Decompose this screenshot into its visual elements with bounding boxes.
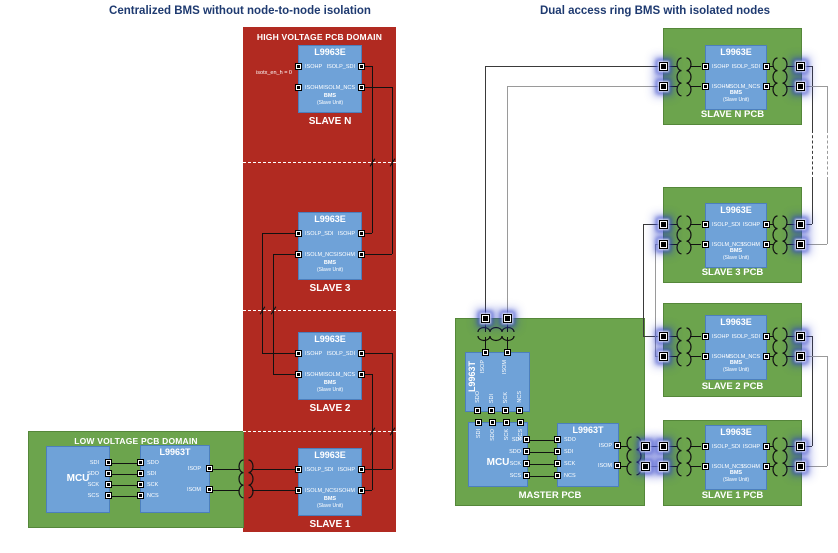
pin-pad <box>137 459 144 466</box>
bms-sublabel: BMS <box>299 93 361 99</box>
wire <box>362 87 392 88</box>
pin-pad <box>517 419 524 426</box>
pin-pad <box>554 436 561 443</box>
pin-pad <box>554 460 561 467</box>
wire <box>392 353 393 469</box>
pin-label: ISOLM_NCS <box>323 372 355 378</box>
wire <box>210 490 239 491</box>
pin-label: SDO <box>147 460 159 466</box>
pin-label: ISOLP_SDI <box>712 222 740 228</box>
pin-pad <box>358 487 365 494</box>
wire <box>210 469 239 470</box>
pin-pad <box>702 463 709 470</box>
wire <box>643 224 644 336</box>
bms-sublabel: BMS <box>706 360 766 366</box>
wire <box>392 87 393 254</box>
wire <box>827 86 828 130</box>
left-diagram-title: Centralized BMS without node-to-node iso… <box>40 5 440 17</box>
pin-label: SDO <box>509 449 521 455</box>
pin-pad <box>763 83 770 90</box>
pin-pad <box>489 419 496 426</box>
wire <box>262 233 298 234</box>
wire <box>372 66 373 233</box>
slave-name: SLAVE 2 <box>278 403 382 414</box>
chip-l9963e-slave-n-pcb: L9963E ISOHP ISOHM ISOLP_SDI ISOLM_NCS B… <box>705 45 767 110</box>
wire <box>650 446 659 447</box>
pin-pad <box>763 443 770 450</box>
wire <box>827 356 828 466</box>
wire-dotted-continuation <box>812 130 813 180</box>
pin-label: ISOP <box>188 466 201 472</box>
pin-pad <box>763 353 770 360</box>
pin-pad <box>523 460 530 467</box>
chip-l9963e-slave-3-pcb: L9963E ISOLP_SDI ISOLM_NCS ISOHP ISOHM B… <box>705 203 767 268</box>
bms-sublabel: (Slave Unit) <box>706 97 766 103</box>
pin-pad <box>614 442 621 449</box>
wire <box>805 446 812 447</box>
pin-label: ISOHM <box>337 252 355 258</box>
pin-pad <box>295 63 302 70</box>
slave-name: SLAVE N <box>278 116 382 127</box>
isolated-connector <box>796 220 805 229</box>
chip-l9963e-slave-1-pcb: L9963E ISOLP_SDI ISOLM_NCS ISOHP ISOHM B… <box>705 425 767 490</box>
transformer-icon <box>676 213 692 257</box>
wire <box>262 233 263 353</box>
pin-label: SDI <box>512 437 521 443</box>
chip-l9963e-slave-n: L9963E ISOHP ISOHM ISOLP_SDI ISOLM_NCS B… <box>298 45 362 113</box>
isolated-connector <box>796 332 805 341</box>
isolated-connector <box>659 62 668 71</box>
bms-architecture-diagram: Centralized BMS without node-to-node iso… <box>0 0 838 553</box>
pin-label: ISOLP_SDI <box>732 64 760 70</box>
pin-pad <box>523 472 530 479</box>
wire <box>362 353 392 354</box>
lv-domain-label: LOW VOLTAGE PCB DOMAIN <box>28 436 244 446</box>
pin-pad <box>702 333 709 340</box>
pin-label: SCK <box>504 429 510 440</box>
chip-label: L9963E <box>706 317 766 327</box>
pin-label: SCS <box>510 473 521 479</box>
pin-pad <box>137 481 144 488</box>
master-pcb-label: MASTER PCB <box>456 490 644 501</box>
wire <box>485 66 486 314</box>
wire <box>827 180 828 244</box>
pin-pad <box>502 407 509 414</box>
isolated-connector <box>796 442 805 451</box>
pin-pad <box>105 492 112 499</box>
pin-pad <box>702 241 709 248</box>
pin-label: ISOLP_SDI <box>732 334 760 340</box>
pin-label: SDO <box>87 471 99 477</box>
pin-label: ISOHP <box>338 231 355 237</box>
pin-label: ISOM <box>502 360 508 374</box>
pin-label: ISOHM <box>305 372 323 378</box>
slave-name: SLAVE 1 <box>278 519 382 530</box>
pin-pad <box>614 462 621 469</box>
pin-pad <box>295 230 302 237</box>
pin-label: ISOHM <box>305 85 323 91</box>
bms-sublabel: BMS <box>299 496 361 502</box>
pin-pad <box>358 230 365 237</box>
wire <box>655 244 656 356</box>
pin-pad <box>474 407 481 414</box>
pin-pad <box>137 470 144 477</box>
wire <box>805 336 812 337</box>
pin-pad <box>295 350 302 357</box>
wire <box>805 244 827 245</box>
chip-label: L9963E <box>299 450 361 460</box>
wire <box>273 254 274 374</box>
pin-pad <box>358 84 365 91</box>
pin-label: ISOHP <box>743 444 760 450</box>
bms-sublabel: (Slave Unit) <box>706 477 766 483</box>
pin-pad <box>763 63 770 70</box>
bms-sublabel: (Slave Unit) <box>299 100 361 106</box>
pin-pad <box>702 353 709 360</box>
isolated-connector <box>659 442 668 451</box>
pin-pad <box>488 407 495 414</box>
pin-pad <box>475 419 482 426</box>
pin-pad <box>358 371 365 378</box>
transformer-icon <box>772 55 788 99</box>
wire <box>805 224 812 225</box>
pin-pad <box>702 221 709 228</box>
isolated-connector <box>659 352 668 361</box>
pin-pad <box>206 486 213 493</box>
slave-pcb-label: SLAVE 3 PCB <box>664 267 801 278</box>
pin-pad <box>295 251 302 258</box>
pin-label: SCK <box>147 482 158 488</box>
chip-l9963t-left: L9963T SDO SDI SCK NCS ISOP ISOM <box>140 445 210 513</box>
bms-sublabel: (Slave Unit) <box>299 387 361 393</box>
isolated-connector <box>659 82 668 91</box>
wire <box>528 476 557 477</box>
pin-pad <box>295 466 302 473</box>
pin-label: ISOHP <box>305 351 322 357</box>
chip-label: L9963E <box>299 214 361 224</box>
bms-sublabel: (Slave Unit) <box>706 367 766 373</box>
chip-mcu-master: SDI SDO SCK SCS MCU SDI SDO SCK SCS <box>468 422 528 487</box>
wire <box>643 224 659 225</box>
wire <box>805 66 812 67</box>
chip-l9963e-slave-1: L9963E ISOLP_SDI ISOLM_NCS ISOHP ISOHM B… <box>298 448 362 516</box>
pin-label: SCK <box>564 461 575 467</box>
pin-label: ISOLM_NCS <box>305 488 337 494</box>
pin-label: ISOHM <box>337 488 355 494</box>
pin-label: ISOHP <box>305 64 322 70</box>
pin-pad <box>295 84 302 91</box>
chip-label: L9963E <box>706 205 766 215</box>
pin-label: NCS <box>147 493 159 499</box>
slave-name: SLAVE 3 <box>278 283 382 294</box>
isolated-connector <box>659 240 668 249</box>
pin-pad <box>523 436 530 443</box>
wire <box>252 469 298 470</box>
pin-pad <box>504 349 511 356</box>
chip-l9963e-slave-2-pcb: L9963E ISOHP ISOHM ISOLP_SDI ISOLM_NCS B… <box>705 315 767 380</box>
bms-sublabel: (Slave Unit) <box>299 503 361 509</box>
pin-pad <box>763 463 770 470</box>
chip-mcu-left: MCU SDI SDO SCK SCS <box>46 446 110 513</box>
pin-label: ISOLP_SDI <box>305 467 333 473</box>
isolated-connector <box>659 220 668 229</box>
pin-pad <box>763 333 770 340</box>
pin-label: NCS <box>517 391 523 403</box>
pin-label: ISOLP_SDI <box>327 351 355 357</box>
pin-pad <box>763 241 770 248</box>
isolated-connector <box>641 442 650 451</box>
pin-label: SDI <box>90 460 99 466</box>
wire <box>362 254 392 255</box>
pin-label: SCK <box>88 482 99 488</box>
pin-label: ISOHP <box>712 64 729 70</box>
wire <box>507 86 659 87</box>
wire <box>650 466 659 467</box>
pin-pad <box>105 459 112 466</box>
continuation-cut-line <box>243 310 396 311</box>
pin-pad <box>358 63 365 70</box>
transformer-icon <box>676 325 692 369</box>
pin-pad <box>523 448 530 455</box>
pin-pad <box>516 407 523 414</box>
wire <box>507 86 508 314</box>
pin-pad <box>554 448 561 455</box>
transformer-icon <box>772 213 788 257</box>
transformer-icon <box>476 325 516 343</box>
bms-sublabel: BMS <box>706 248 766 254</box>
pin-label: ISOP <box>599 443 612 449</box>
chip-l9963e-slave-2: L9963E ISOHP ISOHM ISOLP_SDI ISOLM_NCS B… <box>298 332 362 400</box>
pin-label: ISOP <box>480 360 486 373</box>
pin-label: ISOHP <box>338 467 355 473</box>
pin-label: SDI <box>147 471 156 477</box>
isolated-connector <box>503 314 512 323</box>
chip-label: L9963E <box>299 47 361 57</box>
hv-domain-label: HIGH VOLTAGE PCB DOMAIN <box>243 32 396 42</box>
wire <box>812 66 813 130</box>
pin-label: ISOM <box>598 463 612 469</box>
wire <box>812 336 813 446</box>
chip-label: L9963T <box>141 447 209 457</box>
pin-label: ISOLM_NCS <box>305 252 337 258</box>
pin-label: SDI <box>476 429 482 438</box>
bms-sublabel: BMS <box>706 470 766 476</box>
isolated-connector <box>659 332 668 341</box>
pin-label: ISOHP <box>712 334 729 340</box>
pin-label: SCK <box>510 461 521 467</box>
pin-label: SCS <box>88 493 99 499</box>
transformer-icon <box>676 55 692 99</box>
slave-pcb-label: SLAVE 2 PCB <box>664 381 801 392</box>
slave-pcb-label: SLAVE N PCB <box>664 109 801 120</box>
pin-label: SDI <box>564 449 573 455</box>
transformer-icon <box>772 325 788 369</box>
pin-pad <box>763 221 770 228</box>
bms-sublabel: BMS <box>299 380 361 386</box>
pin-label: ISOLP_SDI <box>305 231 333 237</box>
isolated-connector <box>796 62 805 71</box>
pin-label: ISOLP_SDI <box>712 444 740 450</box>
chip-label: L9963E <box>706 427 766 437</box>
pin-label: SDI <box>489 394 495 403</box>
chip-l9963e-slave-3: L9963E ISOLP_SDI ISOLM_NCS ISOHP ISOHM B… <box>298 212 362 280</box>
pin-pad <box>295 487 302 494</box>
bms-sublabel: (Slave Unit) <box>299 267 361 273</box>
bms-sublabel: (Slave Unit) <box>706 255 766 261</box>
wire <box>485 66 659 67</box>
pin-label: ISOM <box>187 487 201 493</box>
mcu-label: MCU <box>47 473 109 484</box>
chip-l9963t-vertical: L9963T ISOP ISOM SDO SDI SCK NCS <box>465 352 530 412</box>
wire <box>528 452 557 453</box>
wire <box>362 469 392 470</box>
chip-label: L9963E <box>706 47 766 57</box>
chip-l9963t-master-right: L9963T SDO SDI SCK NCS ISOP ISOM <box>557 423 619 487</box>
bms-sublabel: BMS <box>299 260 361 266</box>
pin-pad <box>358 466 365 473</box>
pin-pad <box>554 472 561 479</box>
bms-sublabel: BMS <box>706 90 766 96</box>
right-diagram-title: Dual access ring BMS with isolated nodes <box>490 5 820 17</box>
chip-label: L9963T <box>558 425 618 435</box>
wire <box>528 464 557 465</box>
pin-pad <box>206 465 213 472</box>
isolated-connector <box>659 462 668 471</box>
isolated-connector <box>796 82 805 91</box>
wire <box>812 180 813 224</box>
slave-pcb-label: SLAVE 1 PCB <box>664 490 801 501</box>
pin-pad <box>702 63 709 70</box>
pin-label: SDO <box>490 429 496 441</box>
wire <box>252 490 298 491</box>
pin-pad <box>702 443 709 450</box>
wire-dotted-continuation <box>827 130 828 180</box>
isolated-connector <box>641 462 650 471</box>
wire <box>643 336 659 337</box>
isotx-annotation: isotx_en_h = 0 <box>246 70 292 76</box>
pin-label: NCS <box>564 473 576 479</box>
pin-pad <box>358 350 365 357</box>
wire <box>805 86 827 87</box>
pin-pad <box>105 481 112 488</box>
wire <box>528 440 557 441</box>
pin-label: ISOLP_SDI <box>327 64 355 70</box>
pin-pad <box>702 83 709 90</box>
pin-pad <box>482 349 489 356</box>
pin-label: SDO <box>475 391 481 403</box>
pin-label: ISOHP <box>743 222 760 228</box>
pin-pad <box>137 492 144 499</box>
chip-label: L9963E <box>299 334 361 344</box>
pin-label: SDO <box>564 437 576 443</box>
wire <box>805 466 827 467</box>
pin-pad <box>358 251 365 258</box>
isolated-connector <box>796 240 805 249</box>
pin-pad <box>105 470 112 477</box>
chip-label: L9963T <box>467 361 477 392</box>
transformer-icon <box>676 435 692 479</box>
transformer-icon <box>626 434 642 478</box>
pin-label: SCK <box>503 392 509 403</box>
isolated-connector <box>796 462 805 471</box>
pin-pad <box>503 419 510 426</box>
wire <box>805 356 827 357</box>
isolated-connector <box>481 314 490 323</box>
pin-label: ISOLM_NCS <box>323 85 355 91</box>
pin-pad <box>295 371 302 378</box>
wire <box>262 353 298 354</box>
transformer-icon <box>238 457 254 501</box>
transformer-icon <box>772 435 788 479</box>
isolated-connector <box>796 352 805 361</box>
